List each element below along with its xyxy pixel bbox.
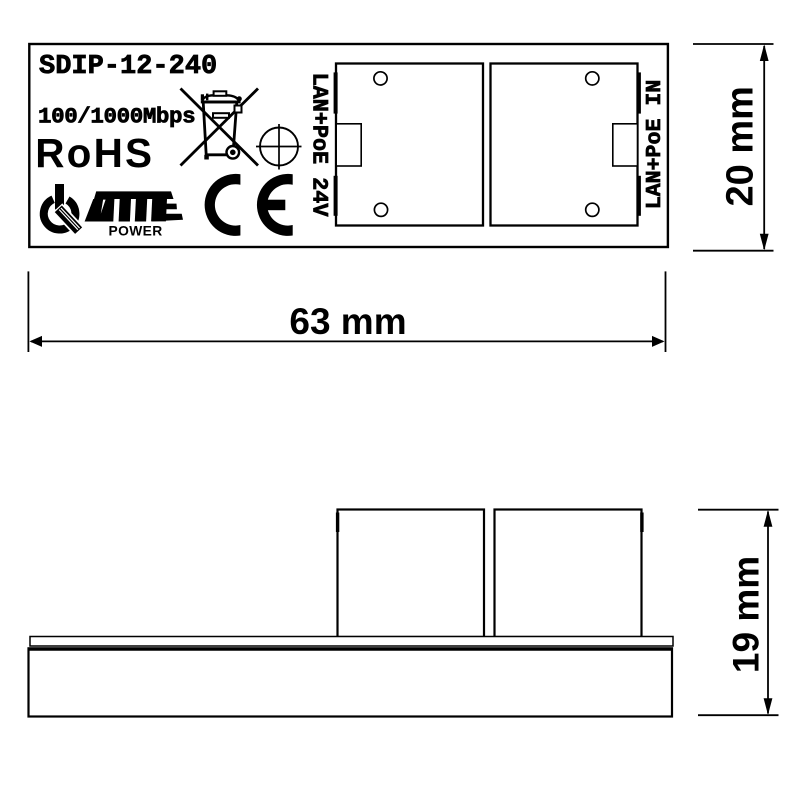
svg-text:SDIP-12-240: SDIP-12-240	[39, 52, 217, 82]
svg-text:RoHS: RoHS	[35, 130, 154, 176]
svg-text:LAN+PoE 24V: LAN+PoE 24V	[307, 73, 332, 218]
svg-text:LAN+PoE IN: LAN+PoE IN	[643, 80, 667, 210]
svg-text:100/1000Mbps: 100/1000Mbps	[38, 104, 195, 130]
svg-text:63 mm: 63 mm	[289, 301, 406, 342]
svg-text:19 mm: 19 mm	[726, 556, 767, 673]
svg-text:POWER: POWER	[109, 223, 163, 238]
svg-text:20 mm: 20 mm	[720, 86, 762, 206]
